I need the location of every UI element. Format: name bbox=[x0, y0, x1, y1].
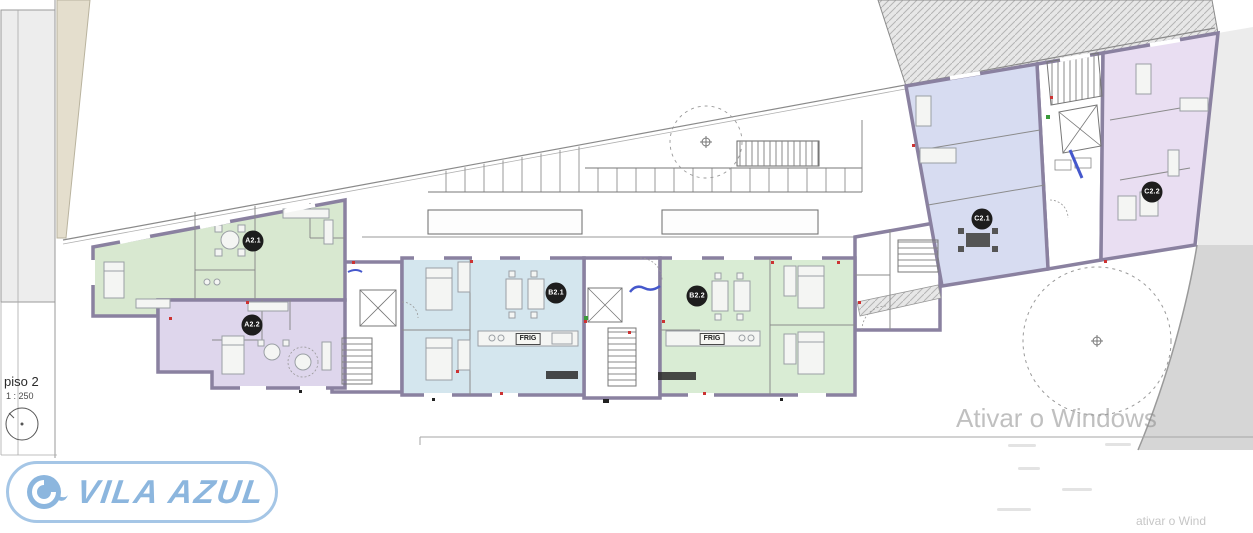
unit-badge-C2-1: C2.1 bbox=[972, 209, 993, 230]
faint-artifact bbox=[1018, 467, 1040, 470]
tree-circle-bottom bbox=[1023, 267, 1171, 415]
unit-badge-A2-2: A2.2 bbox=[242, 315, 263, 336]
floor-title: piso 2 bbox=[4, 374, 39, 389]
terrace-area bbox=[362, 106, 940, 237]
left-neighbor-strip bbox=[1, 0, 90, 458]
fridge-label: FRIG bbox=[700, 333, 725, 345]
terrace-partitions-right bbox=[585, 168, 862, 192]
windows-activation-watermark-corner: ativar o Wind bbox=[1136, 514, 1206, 528]
beige-neighbor-wall bbox=[57, 0, 90, 238]
unit-badge-B2-2: B2.2 bbox=[687, 286, 708, 307]
windows-activation-watermark: Ativar o Windows bbox=[956, 403, 1157, 434]
unit-badge-A2-1: A2.1 bbox=[243, 231, 264, 252]
floor-plan-drawing bbox=[0, 0, 1253, 533]
unit-badge-B2-1: B2.1 bbox=[546, 283, 567, 304]
planter-right bbox=[662, 210, 818, 234]
scale-label: 1 : 250 bbox=[6, 391, 34, 401]
vila-azul-logo-text: VILA AZUL bbox=[74, 473, 267, 511]
vila-azul-logo-icon bbox=[23, 469, 69, 515]
faint-artifact bbox=[1008, 444, 1036, 447]
faint-artifact bbox=[997, 508, 1031, 511]
survey-point-top bbox=[700, 136, 712, 148]
planter-left bbox=[428, 210, 582, 234]
vila-azul-logo: VILA AZUL bbox=[6, 461, 278, 523]
unit-A2-2 bbox=[158, 300, 345, 388]
unit-badge-C2-2: C2.2 bbox=[1142, 182, 1163, 203]
faint-artifact bbox=[1105, 443, 1131, 446]
north-circle bbox=[6, 408, 38, 440]
floor-plan-page: A2.1 A2.2 B2.1 B2.2 C2.1 C2.2 FRIG FRIG … bbox=[0, 0, 1253, 533]
fridge-label: FRIG bbox=[516, 333, 541, 345]
faint-artifact bbox=[1062, 488, 1092, 491]
